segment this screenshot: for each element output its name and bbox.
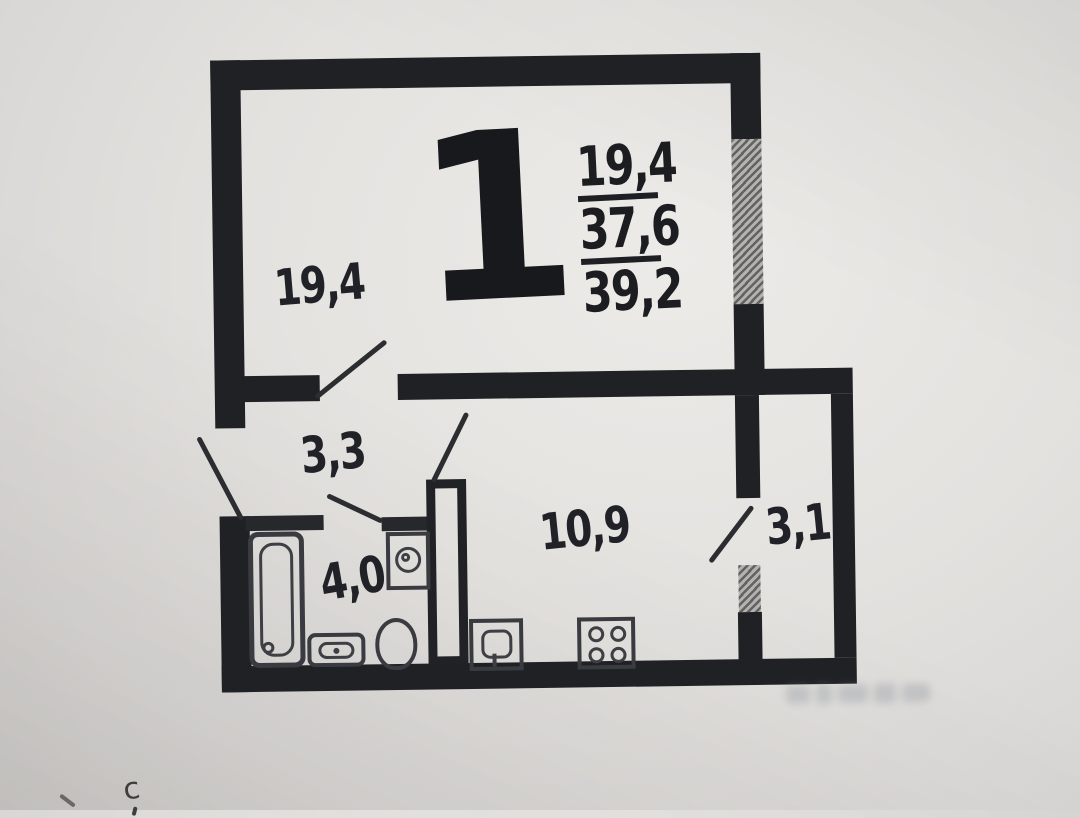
area-without-balcony-value: 37,6 xyxy=(578,201,652,257)
wall-balcony-partition-top xyxy=(735,395,760,498)
wall-balcony-right xyxy=(831,394,857,658)
bathtub-icon xyxy=(248,531,306,668)
area-summary: 19,4 37,6 39,2 xyxy=(575,137,676,320)
compass-north-label: с xyxy=(121,771,143,808)
entrance-door-swing xyxy=(196,436,244,521)
rooms-count-number: 1 xyxy=(411,125,560,313)
wall-bathroom-top-right xyxy=(382,517,430,532)
balcony-door-swing xyxy=(708,505,754,564)
stove-icon xyxy=(577,617,636,670)
edge-mark xyxy=(59,794,76,808)
kitchen-area-label: 10,9 xyxy=(537,495,632,562)
balcony-area-label: 3,1 xyxy=(763,492,833,556)
kitchen-sink-icon xyxy=(469,618,524,671)
living-area-value: 19,4 xyxy=(575,138,649,194)
floor-plan-photo: 1 19,4 37,6 39,2 19,4 3,3 4,0 10,9 3,1 с xyxy=(0,0,1080,818)
compass-arrow-tip xyxy=(132,806,138,816)
kitchen-door-swing xyxy=(431,412,469,483)
faint-watermark xyxy=(786,676,956,710)
vent-shaft-hatch-right-wall xyxy=(731,139,763,304)
duct-wall-bathroom-kitchen xyxy=(426,479,469,666)
wall-bathroom-top-left xyxy=(246,515,324,531)
bathroom-area-label: 4,0 xyxy=(316,545,389,613)
living-room-area-label: 19,4 xyxy=(272,252,367,317)
wall-balcony-partition-bottom xyxy=(738,612,763,662)
vent-hatch-balcony-partition xyxy=(738,565,761,612)
living-room-door-swing xyxy=(314,339,387,399)
sink-icon xyxy=(307,632,365,667)
hallway-area-label: 3,3 xyxy=(298,421,368,485)
wall-left-upper xyxy=(210,60,245,428)
wall-living-bottom-main xyxy=(398,368,853,400)
total-area-value: 39,2 xyxy=(581,263,655,319)
wall-living-bottom-left-segment xyxy=(244,375,320,402)
washing-machine-icon xyxy=(386,532,431,591)
toilet-icon xyxy=(375,618,418,671)
bathroom-door-swing xyxy=(326,493,383,523)
wall-right-upper xyxy=(730,53,761,139)
